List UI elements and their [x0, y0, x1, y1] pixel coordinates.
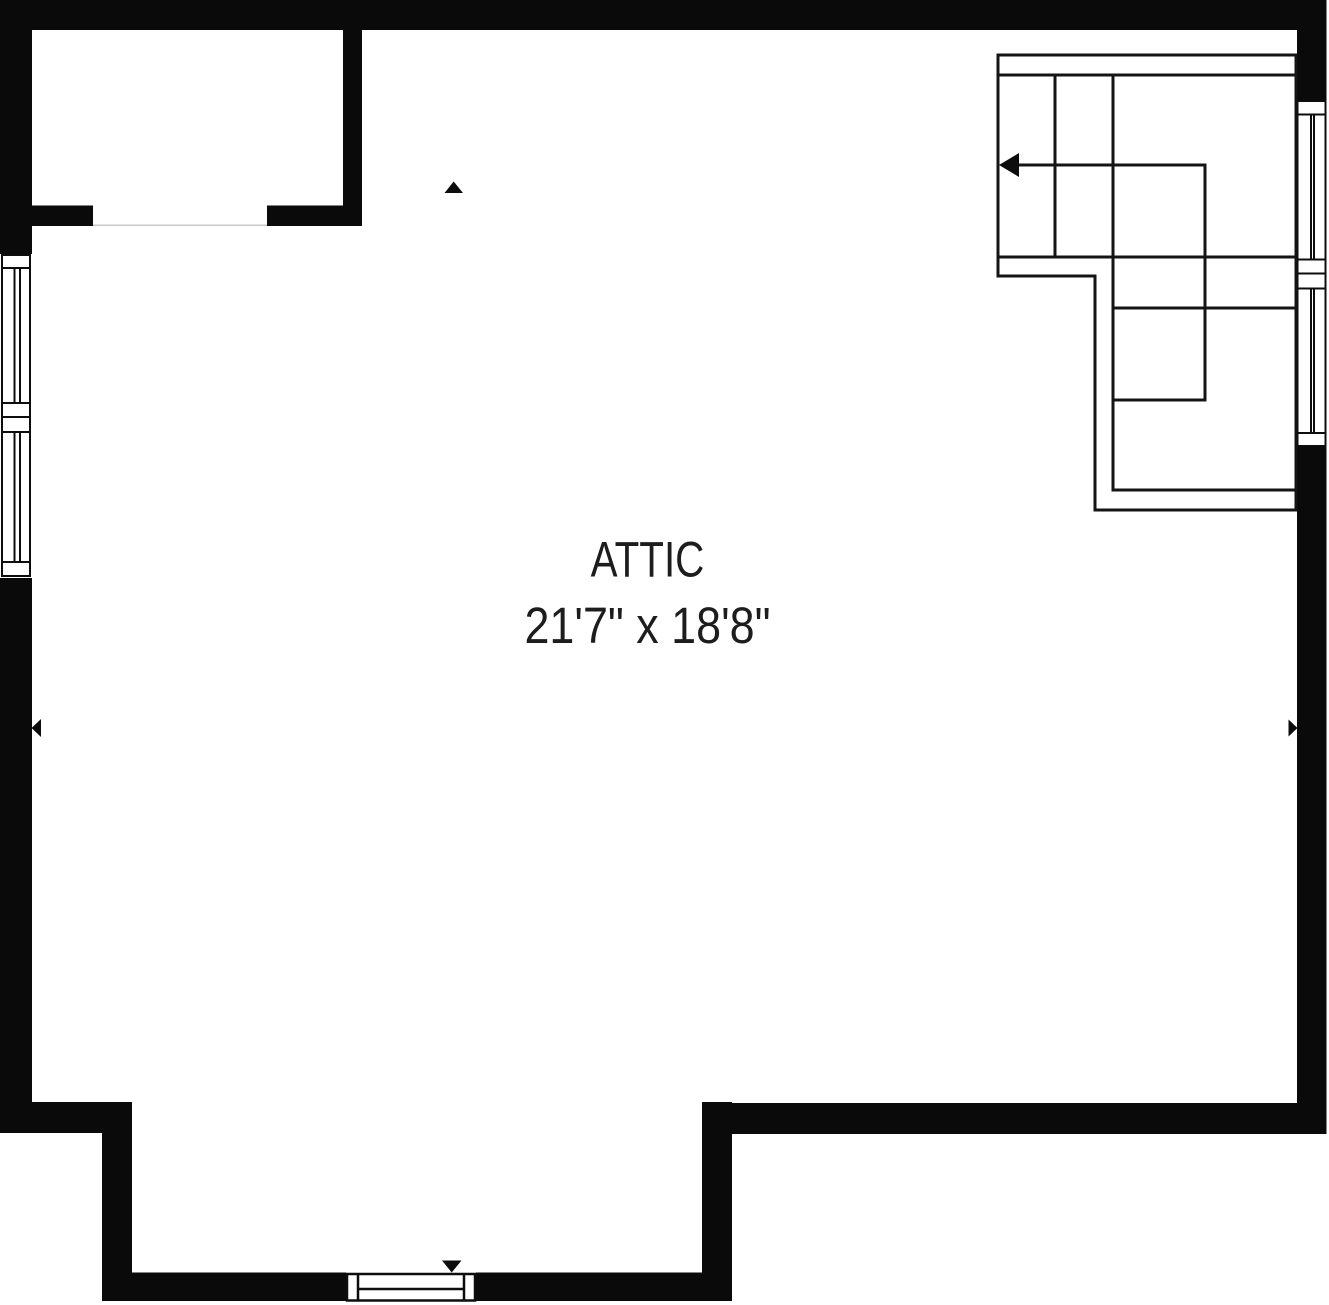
svg-text:21'7" x 18'8": 21'7" x 18'8": [524, 598, 770, 654]
svg-text:ATTIC: ATTIC: [591, 531, 705, 587]
